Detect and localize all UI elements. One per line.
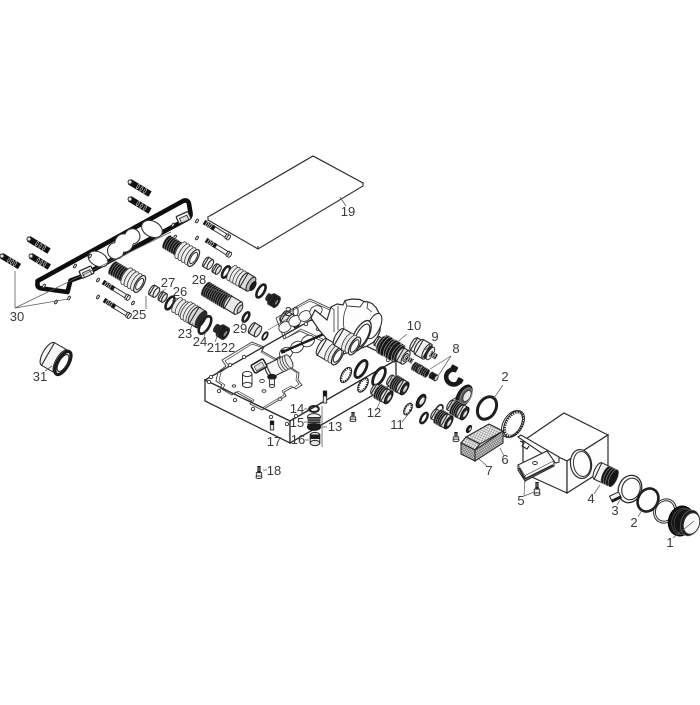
svg-text:9: 9 xyxy=(431,329,438,344)
svg-text:4: 4 xyxy=(587,491,594,506)
svg-text:21: 21 xyxy=(207,340,221,355)
svg-text:29: 29 xyxy=(233,321,247,336)
svg-text:3: 3 xyxy=(611,503,618,518)
svg-text:12: 12 xyxy=(367,405,381,420)
svg-text:5: 5 xyxy=(517,493,524,508)
svg-text:13: 13 xyxy=(328,419,342,434)
svg-text:17: 17 xyxy=(267,434,281,449)
svg-text:2: 2 xyxy=(501,369,508,384)
svg-text:15: 15 xyxy=(290,415,304,430)
svg-text:18: 18 xyxy=(267,463,281,478)
svg-text:6: 6 xyxy=(501,452,508,467)
svg-text:11: 11 xyxy=(390,417,404,432)
svg-text:10: 10 xyxy=(407,318,421,333)
svg-text:19: 19 xyxy=(341,204,355,219)
svg-text:24: 24 xyxy=(193,334,207,349)
svg-text:22: 22 xyxy=(221,340,235,355)
svg-text:23: 23 xyxy=(178,326,192,341)
svg-text:26: 26 xyxy=(173,284,187,299)
svg-text:2: 2 xyxy=(630,515,637,530)
svg-text:14: 14 xyxy=(290,401,304,416)
svg-text:8: 8 xyxy=(452,341,459,356)
svg-text:31: 31 xyxy=(33,369,47,384)
svg-text:16: 16 xyxy=(291,432,305,447)
svg-text:28: 28 xyxy=(192,272,206,287)
svg-text:30: 30 xyxy=(10,309,24,324)
svg-text:1: 1 xyxy=(666,535,673,550)
svg-text:25: 25 xyxy=(132,307,146,322)
